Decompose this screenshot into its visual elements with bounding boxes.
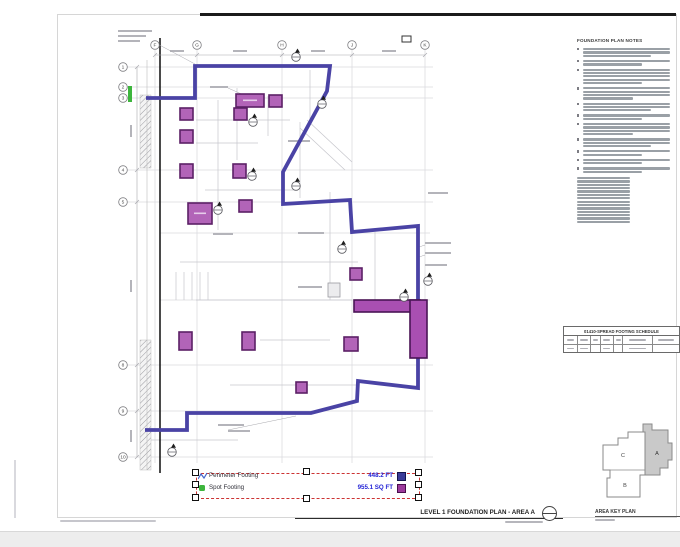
grid-bubble: K [421,41,430,50]
grid-bubble: 5 [119,198,128,207]
footing-mark-text [243,100,257,102]
schedule-header-row [564,336,679,344]
grid-bubble: F [151,41,160,50]
perimeter-footing-label: Perimeter Footing [209,472,258,479]
svg-text:G: G [195,43,199,49]
svg-text:8: 8 [122,363,125,369]
spot-footing [296,382,307,393]
dimension-lines [135,53,427,459]
detail-callout-icon [168,444,177,457]
area-label-c: C [621,453,625,459]
spot-footing [179,332,192,350]
spot-footing [239,200,252,212]
area-label-a: A [655,451,659,457]
spot-footing [180,130,193,143]
grid-lines [118,50,433,463]
spot-footing [180,108,193,120]
spot-color-swatch [397,484,406,493]
spot-footing [269,95,282,107]
spot-footing [180,164,193,178]
spot-footing [242,332,255,350]
area-key-subtext [595,519,615,521]
selection-handle-sw[interactable] [192,494,199,501]
svg-text:10: 10 [120,455,126,461]
grid-bubble: 4 [119,166,128,175]
selection-handle-w[interactable] [192,481,199,488]
schedule-title: 01410-SPREAD FOOTING SCHEDULE [564,327,679,336]
drawing-title: LEVEL 1 FOUNDATION PLAN - AREA A [420,509,535,516]
area-key-title: AREA KEY PLAN [595,509,680,517]
spot-footing-icon [199,485,205,491]
selection-handle-ne[interactable] [415,469,422,476]
spot-footing [344,337,358,351]
detail-callout-icon [400,289,409,302]
strip-footing [410,300,427,358]
perimeter-line-icon [198,472,208,481]
grid-bubble: 1 [119,63,128,72]
spot-footing-value: 955.1 SQ FT [358,484,393,491]
spot-footing [350,268,362,280]
hatch-strip-upper [140,95,151,168]
footing-unhighlighted [328,283,340,297]
legend-row-spot: Spot Footing 955.1 SQ FT [197,483,417,494]
svg-text:3: 3 [122,96,125,102]
notes-panel: FOUNDATION PLAN NOTES [577,38,674,224]
measurement-legend-markup[interactable]: Perimeter Footing 448.2 FT Spot Footing … [186,464,431,506]
construction-lines [150,70,375,440]
grid-bubble: 3 [119,94,128,103]
detail-callout-icon [338,241,347,254]
grid-bubble: 9 [119,407,128,416]
perimeter-footing-value: 448.2 FT [368,472,393,479]
selection-handle-nw[interactable] [192,469,199,476]
area-key-map: C A B [595,420,680,502]
grid-bubble: 10 [119,453,128,462]
footing-mark-text [194,213,206,215]
svg-text:1: 1 [122,65,125,71]
svg-text:H: H [280,43,284,49]
svg-text:2: 2 [122,85,125,91]
spot-footing [233,164,246,178]
grid-bubble: 2 [119,83,128,92]
selection-handle-n[interactable] [303,468,310,475]
detail-callout-icon [248,168,257,181]
drawing-sheet: FGHJK123458910 FOUNDATION PLAN NOTES 014… [0,0,680,546]
annotation-smudges [118,30,451,432]
svg-text:9: 9 [122,409,125,415]
area-key-plan: C A B AREA KEY PLAN [595,420,680,519]
notes-list [577,177,674,223]
svg-text:5: 5 [122,200,125,206]
detail-callout-icon [249,114,258,127]
svg-text:4: 4 [122,168,125,174]
spot-footing-label: Spot Footing [209,484,244,491]
selection-handle-s[interactable] [303,495,310,502]
title-scale-subtext [505,521,543,523]
title-block: LEVEL 1 FOUNDATION PLAN - AREA A [295,505,563,519]
detail-callout-icon [292,49,301,62]
area-label-b: B [623,483,627,489]
area-a-region [643,424,672,475]
grid-bubble: H [278,41,287,50]
view-number-bubble-icon [542,506,557,521]
notes-paragraphs [577,48,674,173]
keynote-box [402,36,411,42]
schedule-data-row [564,344,679,352]
grid-bubble: J [348,41,357,50]
grid-bubble: 8 [119,361,128,370]
grid-bubble: G [193,41,202,50]
spread-footing-schedule: 01410-SPREAD FOOTING SCHEDULE [563,326,680,353]
notes-title: FOUNDATION PLAN NOTES [577,38,674,43]
perimeter-color-swatch [397,472,406,481]
svg-text:F: F [154,43,157,49]
spot-footing [234,108,247,120]
detail-callout-icon [292,178,301,191]
selection-handle-e[interactable] [415,481,422,488]
hatch-strip-lower [140,340,151,470]
selection-handle-se[interactable] [415,494,422,501]
green-markup-marker [128,86,132,102]
